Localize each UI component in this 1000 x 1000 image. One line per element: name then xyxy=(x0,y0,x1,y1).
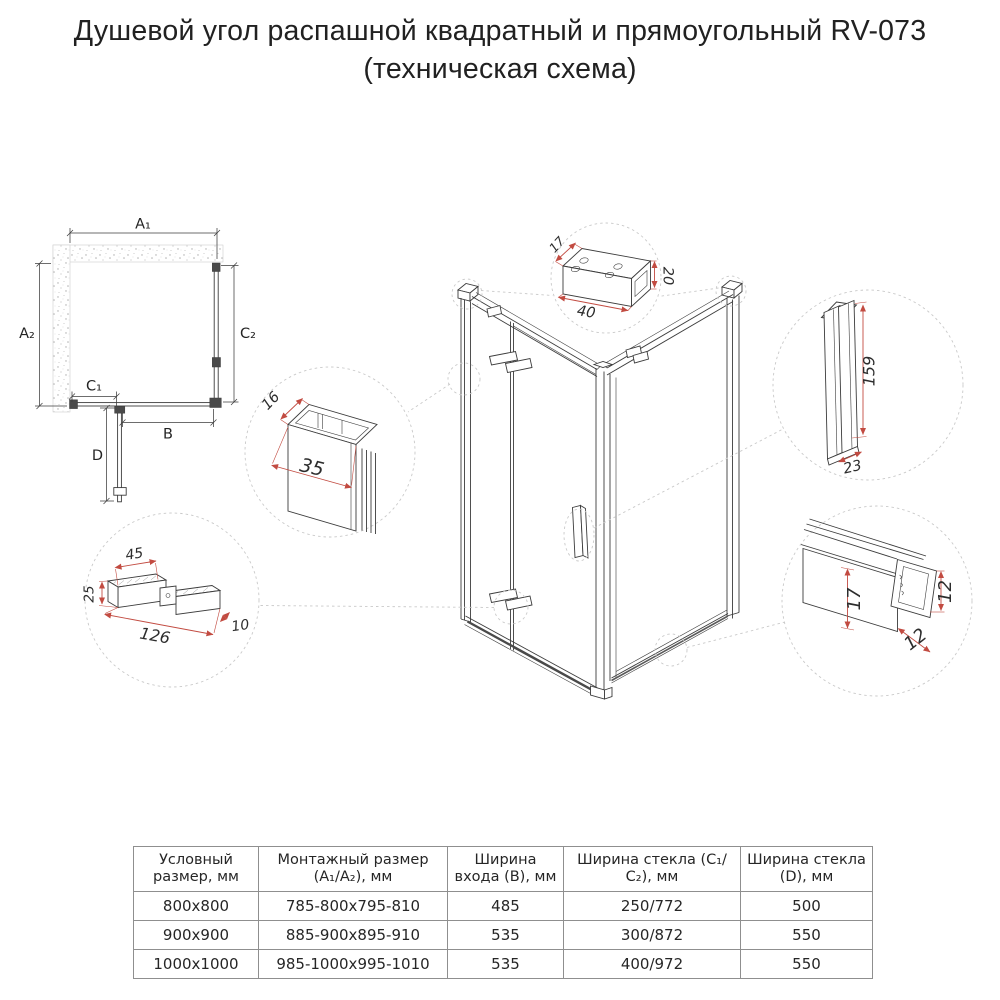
dim-handle-depth: 23 xyxy=(842,458,864,478)
cell-glass-width-c: 250/772 xyxy=(564,892,741,921)
col-header-mounting-size: Монтажный размер (А₁/А₂), мм xyxy=(259,847,448,892)
plan-corner-block xyxy=(210,398,222,408)
plan-view: A₁ A₂ C₂ C₁ B xyxy=(19,217,256,505)
plan-dim-c2: C₂ xyxy=(240,326,256,342)
door-handle xyxy=(573,506,589,559)
col-header-nominal-size: Условный размер, мм xyxy=(134,847,259,892)
plan-dim-a1: A₁ xyxy=(135,217,151,233)
cell-glass-width-d: 500 xyxy=(741,892,873,921)
table-row: 900x900 885-900x895-910 535 300/872 550 xyxy=(134,921,873,950)
plan-dim-d: D xyxy=(92,448,103,464)
right-wall-profile xyxy=(727,296,739,619)
cell-mounting-size: 885-900x895-910 xyxy=(259,921,448,950)
detail-hinge: 45 25 126 10 xyxy=(82,545,251,647)
dim-bottom-height: 12 xyxy=(935,580,956,603)
dim-bracket-height: 20 xyxy=(660,267,676,285)
door-top-hinge xyxy=(490,352,533,373)
dim-bracket-width: 40 xyxy=(576,303,597,322)
cell-nominal-size: 800x800 xyxy=(134,892,259,921)
cell-glass-width-d: 550 xyxy=(741,950,873,979)
isometric-view xyxy=(458,281,742,700)
plan-wall-block xyxy=(70,400,78,409)
table-row: 1000x1000 985-1000x995-1010 535 400/972 … xyxy=(134,950,873,979)
cell-entry-width: 485 xyxy=(448,892,564,921)
cell-entry-width: 535 xyxy=(448,950,564,979)
plan-dim-b: B xyxy=(163,427,173,443)
cell-glass-width-d: 550 xyxy=(741,921,873,950)
corner-post xyxy=(591,362,617,700)
bottom-rail-left xyxy=(465,616,600,697)
bottom-rail-right xyxy=(612,610,729,683)
dim-bracket-depth: 17 xyxy=(546,233,568,255)
dim-bottom-depth: 12 xyxy=(900,624,931,655)
table-header-row: Условный размер, мм Монтажный размер (А₁… xyxy=(134,847,873,892)
detail-bottom-profile: 17 12 12 xyxy=(801,519,956,655)
dim-bottom-inner: 17 xyxy=(844,587,865,610)
dim-hinge-thickness: 10 xyxy=(231,617,251,635)
cell-mounting-size: 785-800x795-810 xyxy=(259,892,448,921)
plan-bracket-top xyxy=(212,263,220,272)
plan-glass-right xyxy=(214,264,218,404)
dim-hinge-side: 25 xyxy=(82,585,98,602)
dim-handle-height: 159 xyxy=(860,356,879,387)
cell-nominal-size: 900x900 xyxy=(134,921,259,950)
plan-bracket-mid xyxy=(212,358,220,368)
cell-nominal-size: 1000x1000 xyxy=(134,950,259,979)
callout-wall-profile xyxy=(448,363,480,395)
detail-handle: 159 23 xyxy=(822,301,879,478)
col-header-glass-width-d: Ширина стекла (D), мм xyxy=(741,847,873,892)
left-wall-profile xyxy=(461,298,471,622)
size-table: Условный размер, мм Монтажный размер (А₁… xyxy=(133,846,873,979)
col-header-entry-width: Ширина входа (B), мм xyxy=(448,847,564,892)
plan-wall-left xyxy=(53,245,70,412)
cell-glass-width-c: 400/972 xyxy=(564,950,741,979)
dim-profile-depth: 16 xyxy=(259,389,283,413)
cell-glass-width-c: 300/872 xyxy=(564,921,741,950)
glass-strips xyxy=(362,449,376,535)
plan-door-end xyxy=(114,488,126,496)
right-bar-clamps xyxy=(626,346,649,363)
col-header-glass-width-c: Ширина стекла (С₁/С₂), мм xyxy=(564,847,741,892)
detail-wall-profile: 16 35 xyxy=(259,389,377,534)
plan-glass-bottom xyxy=(72,403,215,406)
dim-hinge-length: 126 xyxy=(138,624,171,648)
cell-entry-width: 535 xyxy=(448,921,564,950)
plan-door-hinge xyxy=(115,406,125,413)
dim-hinge-top: 45 xyxy=(124,545,144,564)
plan-wall-top xyxy=(53,245,223,262)
detail-top-bracket: 17 40 20 xyxy=(546,233,676,321)
left-bar-clamp xyxy=(487,306,502,318)
table-row: 800x800 785-800x795-810 485 250/772 500 xyxy=(134,892,873,921)
technical-scheme-page: Душевой угол распашной квадратный и прям… xyxy=(0,0,1000,1000)
cell-mounting-size: 985-1000x995-1010 xyxy=(259,950,448,979)
plan-dim-c1: C₁ xyxy=(86,379,102,395)
plan-dim-a2: A₂ xyxy=(19,326,35,342)
